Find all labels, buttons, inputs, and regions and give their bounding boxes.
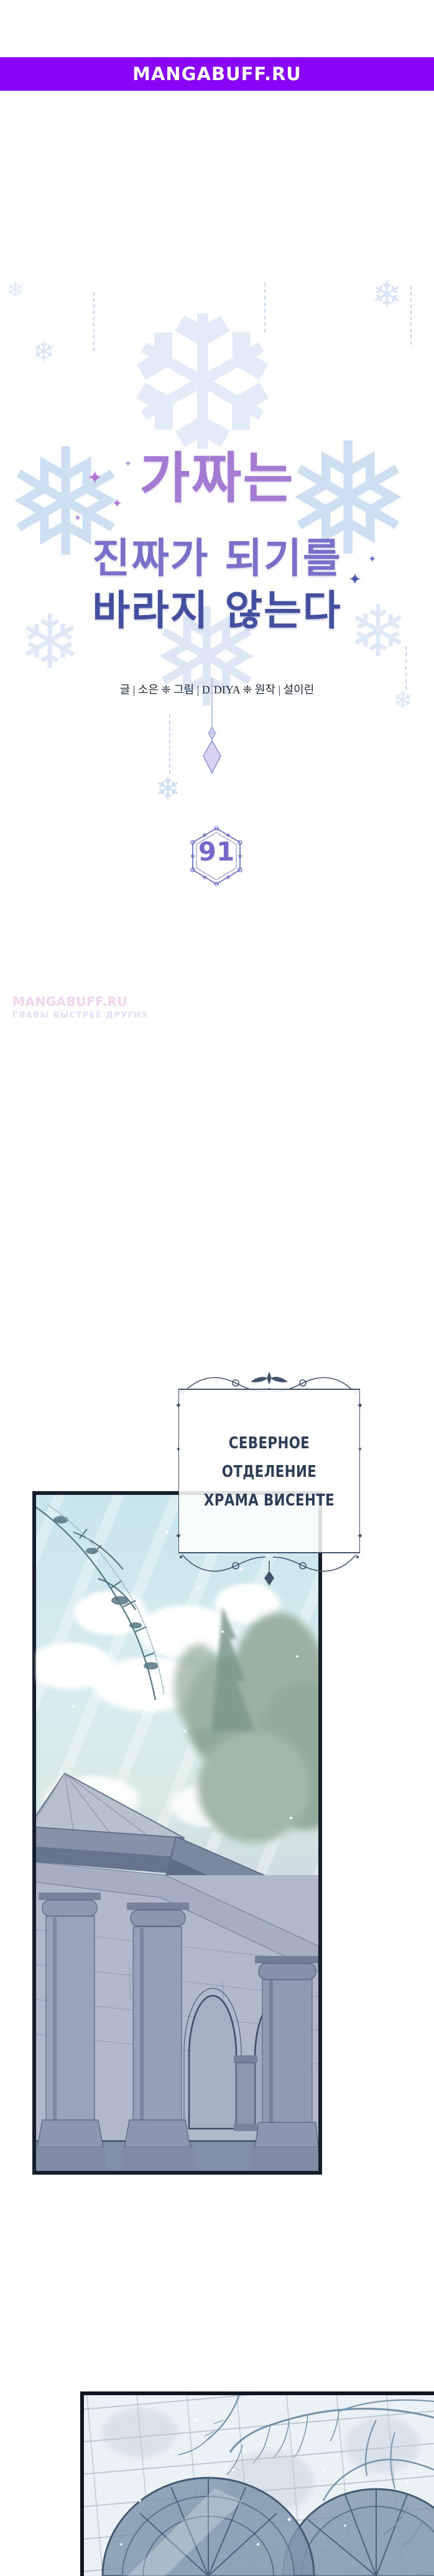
page: MANGABUFF.RU ❆ ❅ ❅ ❅ ❄ ❄ ❄ ❄ ❄ ❄ ❄ ✦ ✦ ✦… (0, 0, 434, 2576)
series-title-line-1: 가짜는 (0, 450, 434, 507)
wall-illustration (84, 2395, 434, 2576)
caption-text-line-2: ХРАМА ВИСЕНТЕ (195, 1486, 343, 1515)
diamond-icon: ◆ (358, 1402, 362, 1409)
panel-temple-exterior (32, 1491, 322, 2175)
diamond-icon: ◆ (358, 1446, 361, 1451)
watermark: MANGABUFF.RU ГЛАВЫ БЫСТРЕЕ ДРУГИХ (12, 994, 149, 1020)
ornament-chain (410, 286, 412, 345)
watermark-line-2: ГЛАВЫ БЫСТРЕЕ ДРУГИХ (12, 1011, 149, 1020)
diamond-icon: ◆ (177, 1402, 181, 1409)
snowflake-icon: ❄ (6, 280, 24, 301)
temple-illustration (36, 1495, 318, 2171)
chapter-badge: 91 (188, 826, 244, 886)
diamond-icon: ◆ (177, 1446, 180, 1451)
series-title-line-3: 바라지 않는다 (0, 589, 434, 632)
watermark-line-1: MANGABUFF.RU (12, 994, 149, 1009)
series-title-line-2: 진짜가 되기를 (0, 537, 434, 580)
caption-text-line-1: СЕВЕРНОЕ ОТДЕЛЕНИЕ (195, 1429, 343, 1486)
ornament-pendant-icon (203, 678, 221, 778)
ornament-chain (93, 292, 95, 351)
diamond-icon: ◆ (177, 1533, 181, 1539)
site-banner-label: MANGABUFF.RU (132, 63, 302, 84)
snowflake-icon: ❄ (32, 339, 55, 366)
panel-temple-wall (80, 2391, 434, 2576)
snowflake-icon: ❄ (372, 276, 402, 313)
caption-bottom-flourish-icon (178, 1552, 360, 1588)
location-caption: СЕВЕРНОЕ ОТДЕЛЕНИЕ ХРАМА ВИСЕНТЕ ◆ ◆ ◆ ◆… (178, 1367, 360, 1588)
snowflake-icon: ❄ (155, 774, 180, 804)
diamond-icon: ◆ (358, 1533, 362, 1539)
chapter-number: 91 (188, 836, 244, 867)
site-banner[interactable]: MANGABUFF.RU (0, 57, 434, 91)
sparkle-icon: ✦ (73, 513, 81, 523)
